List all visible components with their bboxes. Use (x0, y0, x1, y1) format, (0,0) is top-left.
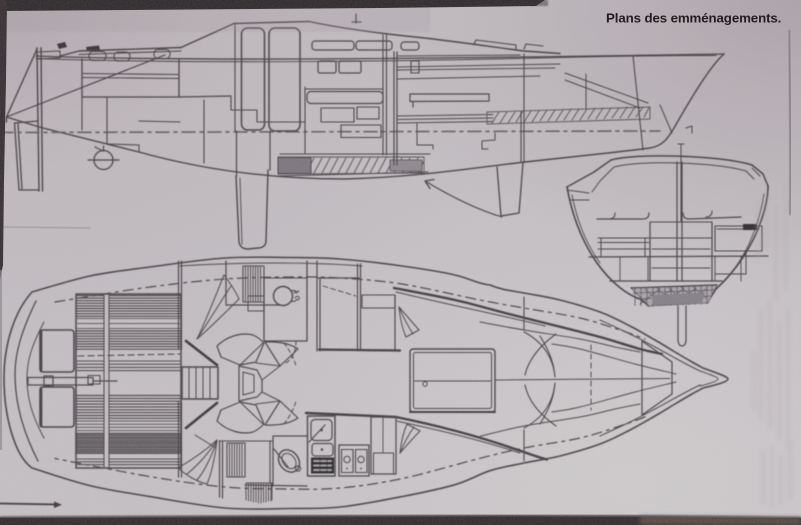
svg-text:Plans des emménagements.: Plans des emménagements. (606, 11, 781, 26)
